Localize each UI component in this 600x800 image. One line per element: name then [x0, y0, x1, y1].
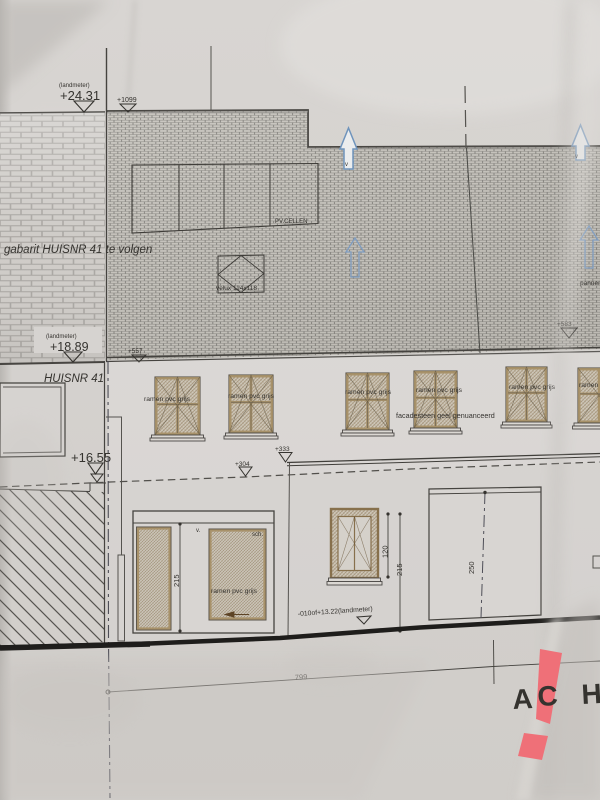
svg-text:250: 250	[467, 561, 476, 574]
svg-text:ramen pvc grijs: ramen pvc grijs	[345, 389, 392, 396]
svg-text:facadesteen geel genuanceerd: facadesteen geel genuanceerd	[396, 411, 495, 420]
svg-text:ramen pvc grijs: ramen pvc grijs	[509, 384, 556, 391]
svg-text:ramen pvc grijs: ramen pvc grijs	[144, 396, 191, 403]
svg-text:215: 215	[395, 563, 404, 576]
svg-text:+557: +557	[128, 348, 143, 355]
svg-text:ramen pvc grijs: ramen pvc grijs	[211, 588, 258, 595]
svg-text:velux 114x118: velux 114x118	[216, 285, 257, 292]
svg-text:PV.CELLEN: PV.CELLEN	[275, 219, 307, 225]
svg-text:ramen pvc grijs: ramen pvc grijs	[579, 382, 600, 389]
svg-text:pannen: pannen	[580, 280, 600, 287]
svg-text:+333: +333	[275, 446, 290, 453]
svg-text:ramen pvc grijs: ramen pvc grijs	[416, 387, 463, 394]
svg-text:A: A	[512, 683, 534, 715]
svg-text:ramen pvc grijs: ramen pvc grijs	[228, 393, 275, 400]
svg-text:v.: v.	[196, 528, 201, 534]
svg-text:+1099: +1099	[117, 97, 137, 104]
svg-text:120: 120	[381, 545, 390, 558]
svg-text:sch.: sch.	[252, 532, 263, 538]
svg-text:215: 215	[172, 574, 181, 587]
svg-text:C: C	[537, 680, 559, 712]
svg-text:v: v	[345, 162, 348, 168]
svg-text:gabarit HUISNR 41 te volgen: gabarit HUISNR 41 te volgen	[4, 244, 152, 256]
svg-text:H: H	[581, 678, 600, 710]
